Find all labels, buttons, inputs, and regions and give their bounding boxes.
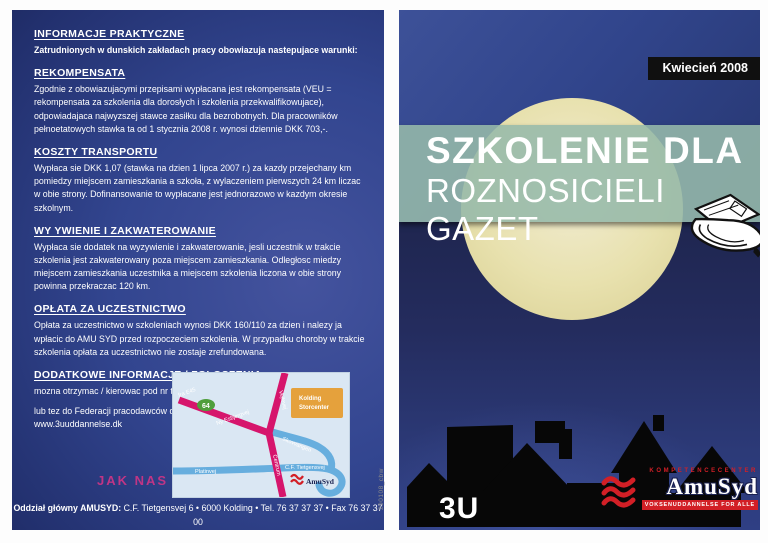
section-body: Zgodnie z obowiazujacymi przepisami wypł… [34,83,368,136]
house-3u-label: 3U [439,492,479,526]
location-map: Kolding Storcenter 64 fra E45 Ny Esbjerg… [172,372,350,498]
section-wyzywienie: WY YWIENIE I ZAKWATEROWANIE Wypłaca sie … [34,225,368,294]
map-road-nyesbjergvej [179,400,269,433]
section-rekompensata: REKOMPENSATA Zgodnie z obowiazujacymi pr… [34,67,368,136]
map-place-box [291,388,343,418]
cover-title-line1: SZKOLENIE DLA [426,131,760,172]
section-oplata: OPŁATA ZA UCZESTNICTWO Opłata za uczestn… [34,303,368,359]
footer-line1: Oddział główny AMUSYD: C.F. Tietgensvej … [12,502,384,529]
section-body: Opłata za uczestnictwo w szkoleniach wyn… [34,319,368,359]
footer-office-label: Oddział główny AMUSYD: [13,503,121,513]
footer-line2: info@amusyd.dk • www.amusyd.dk [12,529,384,530]
section-heading: WY YWIENIE I ZAKWATEROWANIE [34,225,368,237]
amusyd-tagline: VOKSENUDDANNELSE FOR ALLE [642,500,758,510]
cover-page: SZKOLENIE DLA ROZNOSICIELI GAZET Kwiecie… [399,10,760,530]
amusyd-name: AmuSyd [666,475,758,498]
left-page: INFORMACJE PRAKTYCZNE Zatrudnionych w du… [12,10,384,530]
amusyd-logo: KOMPETENCECENTER AmuSyd VOKSENUDDANNELSE… [601,468,758,510]
section-heading: INFORMACJE PRAKTYCZNE [34,28,368,40]
map-place-line1: Kolding [299,396,322,402]
date-badge: Kwiecień 2008 [648,57,760,80]
contact-footer: Oddział główny AMUSYD: C.F. Tietgensvej … [12,502,384,530]
section-koszty-transportu: KOSZTY TRANSPORTU Wypłaca sie DKK 1,07 (… [34,146,368,215]
brochure-spread: INFORMACJE PRAKTYCZNE Zatrudnionych w du… [0,0,768,543]
section-body: Wypłaca sie dodatek na wyzywienie i zakw… [34,241,368,294]
section-body: Wypłaca sie DKK 1,07 (stawka na dzien 1 … [34,162,368,215]
amusyd-wave-icon [601,474,639,510]
section-heading: REKOMPENSATA [34,67,368,79]
map-label-e45: fra E45 [178,387,197,399]
section-body: Zatrudnionych w dunskich zakładach pracy… [34,44,368,57]
map-graphic: Kolding Storcenter 64 fra E45 Ny Esbjerg… [173,373,349,497]
map-label-platinvej: Platinvej [195,469,216,475]
map-logo-text: AmuSyd [306,477,335,486]
map-place-line2: Storcenter [299,405,330,411]
amusyd-logo-text: KOMPETENCECENTER AmuSyd VOKSENUDDANNELSE… [642,468,758,510]
newspaper-icon [687,188,760,280]
print-reference-note: 290108_cbw [378,462,385,510]
footer-address: C.F. Tietgensvej 6 • 6000 Kolding • Tel.… [121,503,382,527]
map-route-number: 64 [202,403,210,410]
map-amusyd-logo: AmuSyd [291,475,335,486]
section-heading: OPŁATA ZA UCZESTNICTWO [34,303,368,315]
section-informacje: INFORMACJE PRAKTYCZNE Zatrudnionych w du… [34,28,368,57]
section-heading: KOSZTY TRANSPORTU [34,146,368,158]
map-label-cftietgensvej: C.F. Tietgensvej [285,465,325,471]
